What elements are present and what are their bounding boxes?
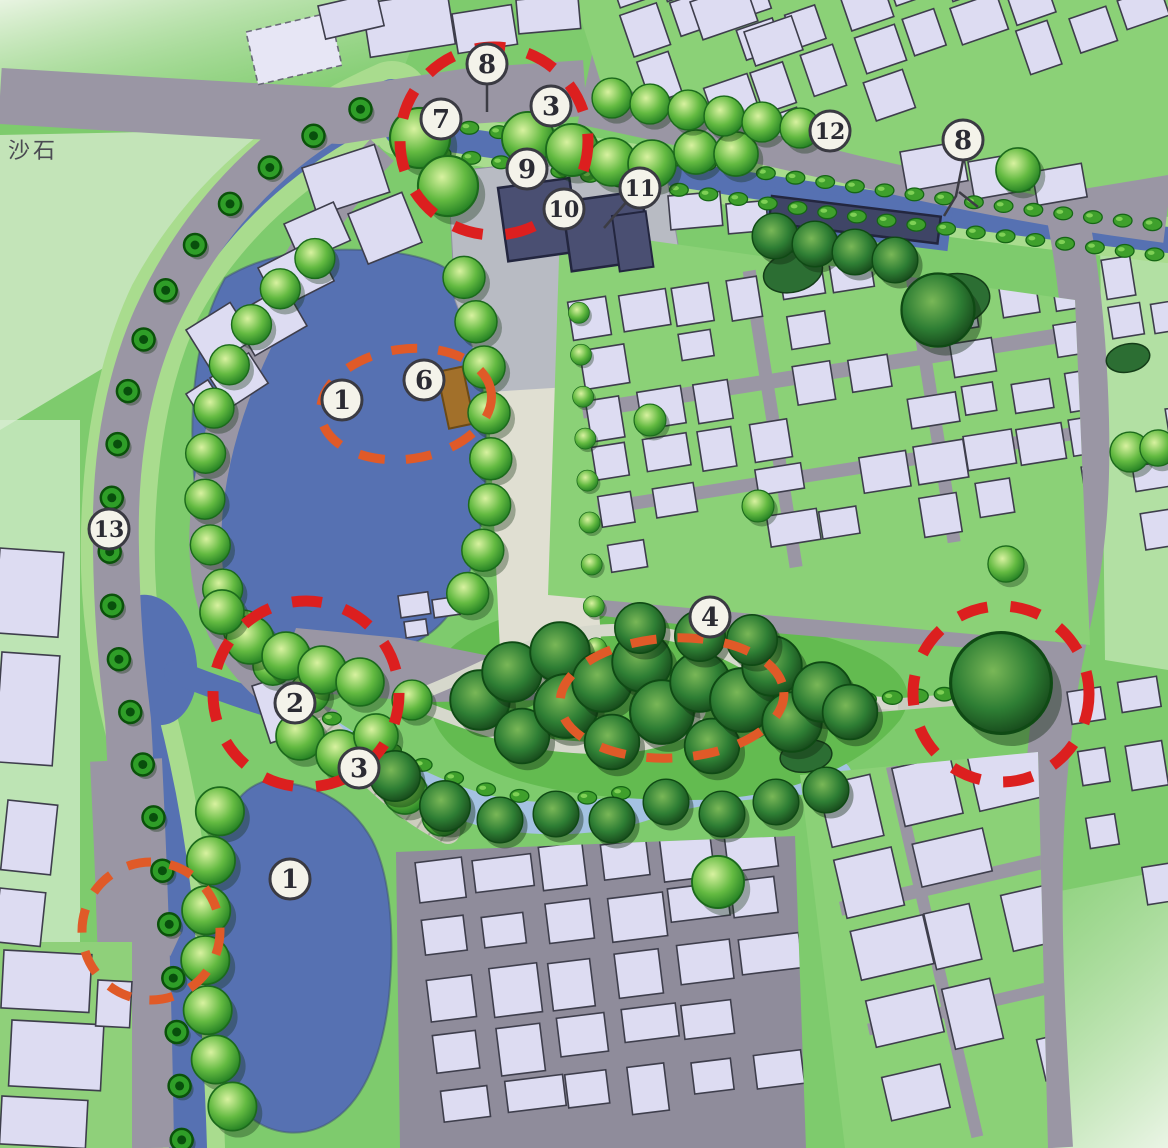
tree-icon — [699, 188, 718, 201]
building — [1101, 256, 1136, 300]
area-label-shashi: 沙石 — [8, 139, 58, 164]
building — [975, 478, 1015, 517]
tree-icon — [907, 218, 926, 231]
building — [404, 619, 428, 638]
marker-m3-top[interactable]: 3 — [531, 86, 571, 126]
tree-icon — [786, 171, 805, 184]
marker-number: 3 — [350, 754, 368, 784]
marker-number: 2 — [286, 689, 304, 719]
building — [693, 380, 734, 424]
marker-m1-upper[interactable]: 1 — [322, 380, 362, 420]
building — [913, 439, 969, 485]
tree-icon — [1086, 241, 1105, 254]
building — [834, 847, 905, 918]
marker-m6[interactable]: 6 — [404, 360, 444, 400]
map-canvas[interactable]: 8379101112816132341 沙石 — [0, 0, 1168, 1148]
building — [1011, 378, 1054, 413]
building — [907, 392, 960, 429]
building — [516, 0, 581, 34]
building — [1086, 814, 1120, 849]
building — [0, 888, 46, 947]
marker-number: 6 — [415, 366, 433, 396]
building — [598, 491, 635, 527]
building — [505, 1074, 567, 1112]
marker-m4[interactable]: 4 — [690, 597, 730, 637]
building — [1, 800, 58, 875]
marker-number: 4 — [701, 603, 719, 633]
tree-icon — [477, 783, 496, 796]
tree-icon — [1024, 203, 1043, 216]
marker-number: 11 — [625, 176, 656, 202]
marker-m8-top[interactable]: 8 — [467, 44, 507, 84]
building — [608, 892, 668, 942]
tree-icon — [846, 180, 865, 193]
building — [963, 429, 1017, 471]
marker-number: 3 — [542, 92, 560, 122]
tree-icon — [788, 202, 807, 215]
tree-icon — [905, 188, 924, 201]
building — [749, 419, 792, 463]
tree-icon — [877, 214, 896, 227]
building — [676, 939, 734, 985]
tree-icon — [1115, 245, 1134, 258]
building — [426, 975, 476, 1022]
tree-icon — [460, 121, 479, 134]
tree-icon — [1084, 211, 1103, 224]
marker-m7[interactable]: 7 — [421, 99, 461, 139]
marker-m9[interactable]: 9 — [507, 149, 547, 189]
building — [961, 382, 996, 415]
tree-icon — [510, 790, 529, 803]
building — [787, 311, 830, 350]
marker-m2[interactable]: 2 — [275, 683, 315, 723]
tree-icon — [816, 176, 835, 189]
building — [398, 592, 431, 618]
marker-number: 9 — [518, 155, 536, 185]
marker-m12[interactable]: 12 — [810, 111, 850, 151]
building — [652, 483, 697, 518]
building — [678, 329, 714, 360]
building — [440, 1086, 490, 1123]
building — [565, 1070, 610, 1108]
tree-icon — [323, 712, 342, 725]
tree-icon — [937, 222, 956, 235]
tree-icon — [1143, 218, 1162, 231]
building — [538, 842, 587, 891]
marker-m11[interactable]: 11 — [620, 168, 660, 208]
building — [1140, 508, 1168, 550]
marker-number: 8 — [954, 126, 972, 156]
building — [819, 506, 860, 539]
building — [496, 1023, 545, 1076]
tree-icon — [818, 206, 837, 219]
building — [919, 492, 962, 537]
building — [489, 963, 543, 1018]
tree-icon — [848, 210, 867, 223]
building — [614, 949, 663, 999]
building — [481, 912, 526, 947]
pavilion-11 — [612, 211, 653, 271]
building — [1, 950, 92, 1013]
building — [792, 361, 836, 405]
marker-number: 1 — [333, 386, 351, 416]
building — [556, 1012, 608, 1056]
building — [472, 854, 534, 893]
building — [681, 1000, 735, 1040]
building — [753, 1050, 804, 1089]
building — [738, 933, 802, 975]
marker-m8-right[interactable]: 8 — [943, 120, 983, 160]
building — [691, 1058, 734, 1094]
building — [0, 548, 64, 637]
marker-number: 10 — [549, 197, 580, 223]
building — [619, 288, 671, 331]
building — [859, 450, 911, 493]
marker-m3-mid[interactable]: 3 — [339, 748, 379, 788]
building — [548, 959, 596, 1011]
tree-icon — [1056, 237, 1075, 250]
building — [9, 1020, 104, 1091]
building — [545, 899, 595, 944]
building — [608, 540, 648, 573]
marker-m1-lower[interactable]: 1 — [270, 859, 310, 899]
marker-number: 7 — [432, 105, 450, 135]
building — [591, 442, 629, 480]
marker-number: 12 — [815, 119, 846, 145]
building — [432, 1030, 479, 1073]
tree-icon — [578, 791, 597, 804]
building — [1078, 747, 1110, 785]
building — [627, 1063, 670, 1115]
tree-icon — [758, 197, 777, 210]
building — [1108, 303, 1144, 339]
marker-number: 1 — [281, 865, 299, 895]
tree-icon — [994, 200, 1013, 213]
building — [0, 1096, 88, 1148]
building — [848, 354, 892, 392]
building — [621, 1003, 679, 1042]
tree-icon — [1113, 214, 1132, 227]
tree-icon — [1054, 207, 1073, 220]
tree-icon — [996, 230, 1015, 243]
marker-number: 8 — [478, 50, 496, 80]
tree-icon — [875, 184, 894, 197]
building — [1125, 741, 1168, 791]
site-plan-map: 8379101112816132341 沙石 — [0, 0, 1168, 1148]
tree-icon — [729, 193, 748, 206]
building — [671, 283, 714, 327]
marker-m13[interactable]: 13 — [89, 509, 129, 549]
building — [726, 276, 762, 321]
tree-icon — [1026, 234, 1045, 247]
tree-icon — [966, 226, 985, 239]
marker-number: 13 — [94, 517, 125, 543]
building — [0, 652, 60, 766]
building — [892, 755, 963, 826]
marker-m10[interactable]: 10 — [544, 189, 584, 229]
building — [415, 857, 466, 903]
building — [1016, 423, 1067, 466]
building — [421, 915, 467, 955]
building — [1117, 676, 1161, 712]
building — [697, 427, 737, 472]
tree-icon — [1145, 248, 1164, 261]
tree-icon — [882, 691, 902, 705]
